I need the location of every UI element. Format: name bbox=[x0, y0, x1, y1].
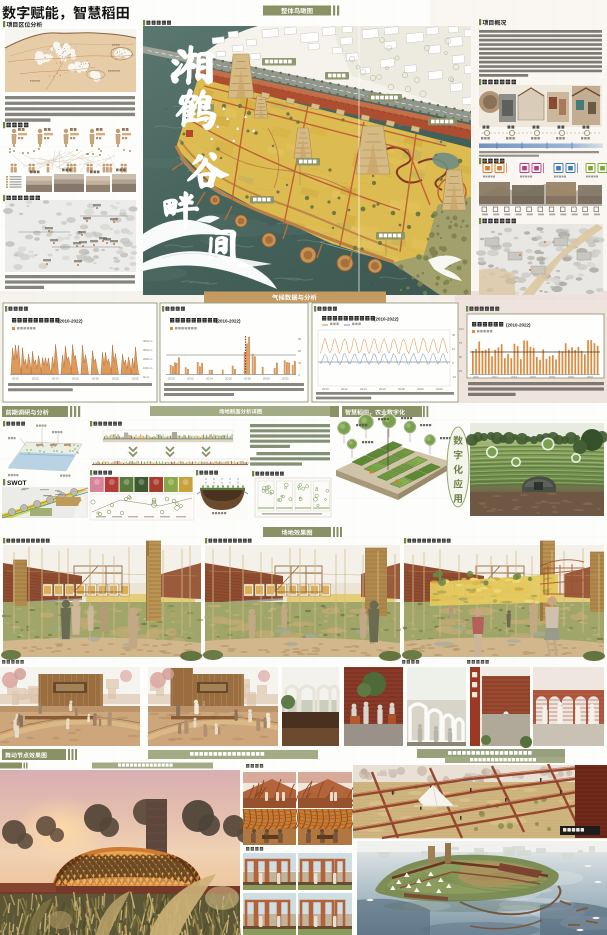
svg-text:15: 15 bbox=[452, 347, 456, 351]
svg-text:0mm: 0mm bbox=[143, 375, 150, 379]
svg-text:2020: 2020 bbox=[417, 387, 424, 391]
svg-text:100: 100 bbox=[459, 327, 464, 331]
svg-text:2018: 2018 bbox=[244, 377, 251, 381]
svg-text:200mm: 200mm bbox=[143, 357, 153, 361]
svg-text:(2010-2022): (2010-2022) bbox=[506, 323, 531, 328]
svg-text:30: 30 bbox=[298, 361, 302, 365]
svg-text:2012: 2012 bbox=[32, 377, 39, 381]
svg-text:25: 25 bbox=[459, 369, 463, 373]
svg-text:-15: -15 bbox=[452, 375, 456, 379]
svg-text:75: 75 bbox=[459, 341, 463, 345]
svg-text:2020: 2020 bbox=[112, 377, 119, 381]
svg-text:2010: 2010 bbox=[168, 377, 175, 381]
svg-text:2018: 2018 bbox=[398, 387, 405, 391]
svg-text:400mm: 400mm bbox=[143, 339, 153, 343]
svg-text:2022: 2022 bbox=[436, 387, 443, 391]
svg-text:2014: 2014 bbox=[360, 387, 367, 391]
svg-text:2022: 2022 bbox=[282, 377, 289, 381]
svg-text:SWOT: SWOT bbox=[7, 480, 27, 487]
svg-text:2012: 2012 bbox=[341, 387, 348, 391]
svg-text:2016: 2016 bbox=[225, 377, 232, 381]
svg-text:300mm: 300mm bbox=[143, 348, 153, 352]
svg-text:2022: 2022 bbox=[587, 375, 593, 379]
svg-text:2022: 2022 bbox=[132, 377, 139, 381]
svg-text:2010: 2010 bbox=[322, 387, 329, 391]
svg-text:2016: 2016 bbox=[379, 387, 386, 391]
svg-text:2018: 2018 bbox=[92, 377, 99, 381]
svg-text:2010: 2010 bbox=[473, 375, 479, 379]
svg-text:2014: 2014 bbox=[206, 377, 213, 381]
svg-text:2014: 2014 bbox=[511, 375, 517, 379]
svg-text:2014: 2014 bbox=[52, 377, 59, 381]
svg-text:2012: 2012 bbox=[187, 377, 194, 381]
svg-text:60: 60 bbox=[298, 349, 302, 353]
svg-text:2018: 2018 bbox=[549, 375, 555, 379]
svg-text:(2010-2022): (2010-2022) bbox=[58, 319, 83, 324]
svg-text:50: 50 bbox=[459, 355, 463, 359]
svg-text:30: 30 bbox=[452, 333, 456, 337]
svg-text:90: 90 bbox=[298, 337, 302, 341]
svg-text:2020: 2020 bbox=[568, 375, 574, 379]
svg-text:2016: 2016 bbox=[72, 377, 79, 381]
svg-text:2012: 2012 bbox=[492, 375, 498, 379]
svg-text:100mm: 100mm bbox=[143, 366, 153, 370]
svg-text:2016: 2016 bbox=[530, 375, 536, 379]
svg-text:(2010-2022): (2010-2022) bbox=[374, 317, 399, 322]
svg-text:2010: 2010 bbox=[12, 377, 19, 381]
svg-text:2020: 2020 bbox=[263, 377, 270, 381]
svg-text:(2010-2022): (2010-2022) bbox=[216, 319, 241, 324]
